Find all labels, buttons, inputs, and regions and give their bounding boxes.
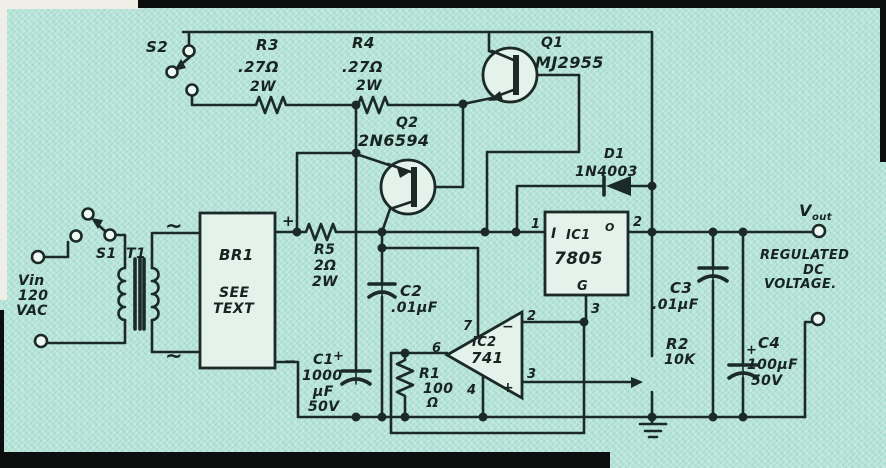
q2-ref: Q2 [396, 115, 418, 131]
br1-plus: + [282, 212, 295, 230]
r3-power: 2W [250, 79, 276, 95]
r2-ref: R2 [666, 335, 689, 353]
scan-artifact [880, 0, 886, 162]
c1-polarity: + [333, 349, 344, 364]
s2-contact [187, 85, 198, 96]
r1-ref: R1 [419, 366, 440, 382]
t1-label: T1 [126, 246, 146, 262]
ic2-pin6: 6 [432, 341, 441, 356]
c3-ref: C3 [670, 279, 692, 297]
ic1-pin2: 2 [633, 215, 642, 230]
wire-vout-neg [805, 322, 812, 417]
wire-r1-branch [397, 353, 413, 417]
c2-ref: C2 [400, 282, 422, 300]
ic2-minus: − [502, 319, 514, 335]
switch-s1 [71, 209, 116, 242]
ic1-in: I [551, 226, 557, 242]
s2-contact [184, 46, 195, 57]
vout-label: V [799, 201, 813, 220]
c4-polarity: + [746, 343, 757, 358]
br1-ref: BR1 [219, 246, 254, 264]
r1-value: 100 [423, 381, 453, 397]
scan-artifact [0, 310, 4, 460]
r5-value: 2Ω [314, 258, 336, 274]
t1-secondary-coil [152, 268, 159, 320]
scan-artifact [138, 0, 886, 8]
ic1-out: O [605, 221, 615, 234]
wire-raw-link [297, 153, 356, 232]
s2-label: S2 [146, 38, 168, 56]
vout-terminal-plus [813, 225, 825, 237]
scan-artifact [0, 452, 610, 468]
c1-unit: μF [312, 384, 334, 400]
br1-ac-bottom: ~ [165, 344, 183, 368]
labels: S2 R3 .27Ω 2W R4 .27Ω 2W Q1 MJ2955 Q2 2N… [16, 34, 849, 415]
vin-line2: 120 [18, 288, 48, 304]
ic1-part: 7805 [554, 249, 603, 269]
r5-power: 2W [312, 274, 338, 290]
br1-minus: − [284, 352, 297, 370]
switch-s2 [167, 46, 198, 96]
ic2-pin2: 2 [527, 309, 536, 324]
scan-artifact [0, 0, 7, 300]
vin-terminal-bottom [35, 335, 47, 347]
wire-secondary-top [152, 233, 200, 268]
transistor-q1 [483, 48, 537, 102]
r2-value: 10K [664, 352, 696, 368]
q2-base-bar [411, 167, 417, 207]
d1-ref: D1 [604, 147, 625, 162]
q1-base-bar [513, 55, 519, 95]
s1-contact [105, 230, 116, 241]
wire-r3-r4-branch [192, 96, 463, 113]
s1-contact [71, 231, 82, 242]
q2-part: 2N6594 [358, 131, 429, 150]
wire-primary-bottom [47, 320, 125, 343]
vout-sub: out [812, 212, 833, 223]
t1-core [135, 259, 144, 329]
q2-body [381, 160, 435, 214]
s1-label: S1 [96, 246, 117, 262]
ic1-gnd: G [577, 279, 588, 294]
scan-artifact [0, 0, 140, 9]
t1-primary-coil [119, 268, 125, 320]
vin-line3: VAC [16, 303, 48, 319]
s2-contact [167, 67, 178, 78]
c4-ref: C4 [758, 334, 780, 352]
ic1-pin3: 3 [591, 302, 600, 317]
q1-part: MJ2955 [535, 53, 604, 72]
c2-value: .01μF [391, 300, 438, 316]
wire-input-rail [275, 224, 545, 240]
d1-part: 1N4003 [575, 164, 638, 180]
vout-desc1: REGULATED [760, 248, 849, 263]
vout-terminal-minus [812, 313, 824, 325]
transistor-q2 [381, 160, 435, 214]
transformer-t1 [119, 259, 159, 329]
c1-ref: C1 [313, 352, 334, 368]
c1-value: 1000 [302, 368, 343, 384]
c3-value: .01μF [652, 297, 699, 313]
ic2-ref: IC2 [472, 335, 497, 350]
c1-voltage: 50V [308, 399, 340, 415]
r4-power: 2W [356, 78, 382, 94]
r5-ref: R5 [314, 242, 335, 258]
vout-desc2: DC [803, 263, 824, 278]
vin-terminal-top [32, 251, 44, 263]
q1-ref: Q1 [541, 35, 563, 51]
wire-primary-top [116, 235, 125, 268]
ic1-ref: IC1 [566, 228, 591, 243]
br1-ac-top: ~ [165, 214, 183, 238]
br1-note1: SEE [219, 285, 249, 301]
r1-unit: Ω [426, 396, 438, 411]
ic1-pin1: 1 [531, 217, 540, 232]
q1-body [483, 48, 537, 102]
r3-value: .27Ω [238, 58, 279, 76]
wire-vin-plus [44, 242, 68, 257]
vout-desc3: VOLTAGE. [764, 277, 837, 292]
s1-contact [83, 209, 94, 220]
c4-value: 100μF [747, 357, 798, 373]
r2-wiper-arrow-icon [631, 377, 643, 388]
c4-voltage: 50V [751, 373, 783, 389]
ic2-pin7: 7 [463, 319, 473, 334]
ic2-part: 741 [471, 349, 504, 367]
br1-note2: TEXT [213, 301, 255, 317]
r4-value: .27Ω [342, 58, 383, 76]
ic2-plus: + [502, 380, 514, 396]
r4-ref: R4 [352, 34, 375, 52]
scanned-schematic-page: S2 R3 .27Ω 2W R4 .27Ω 2W Q1 MJ2955 Q2 2N… [0, 0, 886, 468]
vin-label: Vin [18, 273, 45, 289]
r3-ref: R3 [256, 36, 279, 54]
ic2-pin4: 4 [466, 383, 476, 398]
ic2-pin3: 3 [527, 367, 536, 382]
schematic-canvas: S2 R3 .27Ω 2W R4 .27Ω 2W Q1 MJ2955 Q2 2N… [0, 0, 886, 468]
